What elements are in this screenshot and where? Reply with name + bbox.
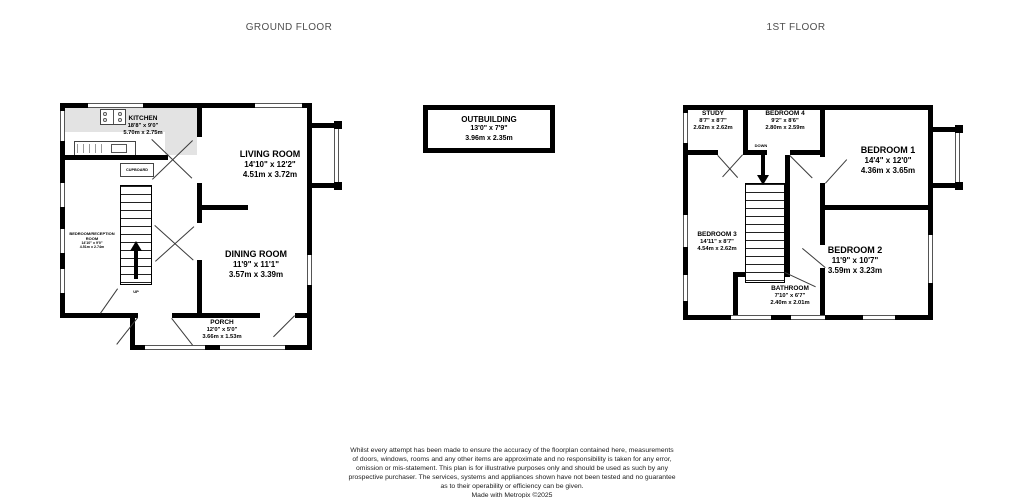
wall-segment bbox=[172, 313, 260, 318]
up-arrow-icon bbox=[130, 241, 142, 251]
window bbox=[928, 235, 933, 283]
window bbox=[791, 315, 825, 320]
wall-segment bbox=[197, 103, 202, 137]
first-floor-plan: DOWN STUDY 8'7" x 8'7" 2.62m x 2.62m BED… bbox=[683, 105, 933, 320]
wall-segment bbox=[785, 155, 790, 277]
bay-window-post bbox=[334, 182, 342, 190]
window bbox=[863, 315, 895, 320]
room-label-kitchen: KITCHEN 18'8" x 9'0" 5.70m x 2.75m bbox=[103, 115, 183, 138]
wall-segment bbox=[733, 272, 738, 315]
wall-segment bbox=[295, 313, 312, 318]
bay-window-glass bbox=[955, 132, 960, 183]
room-label-bedroom-3: BEDROOM 3 14'11" x 8'7" 4.54m x 2.62m bbox=[677, 231, 757, 254]
disclaimer-line: Whilst every attempt has been made to en… bbox=[312, 446, 712, 455]
window bbox=[683, 275, 688, 301]
window bbox=[731, 315, 771, 320]
wall-segment bbox=[820, 205, 933, 210]
wall-segment bbox=[60, 155, 168, 160]
room-label-porch: PORCH 12'0" x 5'0" 3.66m x 1.53m bbox=[162, 319, 282, 342]
disclaimer-line: omission or mis-statement. This plan is … bbox=[312, 464, 712, 473]
disclaimer-line: as to their operability or efficiency ca… bbox=[312, 482, 712, 491]
disclaimer-line: of doors, windows, rooms and any other i… bbox=[312, 455, 712, 464]
floorplan-page: GROUND FLOOR 1ST FLOOR bbox=[0, 0, 1024, 498]
ground-floor-plan: CUPBOARD UP KITCHEN 18'8" x 9'0" 5.70m x… bbox=[60, 103, 312, 318]
cupboard-box: CUPBOARD bbox=[120, 163, 154, 177]
room-label-bedroom-4: BEDROOM 4 9'2" x 8'6" 2.80m x 2.59m bbox=[745, 110, 825, 133]
bay-window-post bbox=[334, 121, 342, 129]
metropix-credit: Made with Metropix ©2025 bbox=[312, 491, 712, 498]
door-swing bbox=[722, 154, 743, 177]
draining-board-icon bbox=[77, 144, 105, 153]
up-arrow-stem bbox=[134, 251, 138, 279]
bay-window-post bbox=[955, 125, 963, 133]
up-label: UP bbox=[126, 289, 146, 294]
bay-window-glass bbox=[334, 128, 339, 183]
room-label-bedroom-2: BEDROOM 2 11'9" x 10'7" 3.59m x 3.23m bbox=[795, 245, 915, 276]
disclaimer-line: prospective purchaser. The services, sys… bbox=[312, 473, 712, 482]
wall-segment bbox=[197, 183, 202, 223]
wall-segment bbox=[205, 345, 220, 350]
room-label-dining-room: DINING ROOM 11'9" x 11'1" 3.57m x 3.39m bbox=[196, 249, 316, 280]
down-label: DOWN bbox=[747, 143, 775, 148]
down-arrow-icon bbox=[757, 175, 769, 185]
window bbox=[60, 269, 65, 293]
room-label-bedroom-reception: BEDROOM/RECEPTION ROOM 14'10" x 9'0" 4.5… bbox=[63, 231, 121, 250]
disclaimer-text: Whilst every attempt has been made to en… bbox=[312, 446, 712, 498]
first-floor-title: 1ST FLOOR bbox=[716, 22, 876, 33]
room-label-study: STUDY 8'7" x 8'7" 2.62m x 2.62m bbox=[675, 110, 751, 133]
window bbox=[60, 111, 65, 141]
room-label-bedroom-1: BEDROOM 1 14'4" x 12'0" 4.36m x 3.65m bbox=[828, 145, 948, 176]
bay-window-post bbox=[955, 182, 963, 190]
window bbox=[145, 345, 205, 350]
sink-unit-icon bbox=[74, 141, 136, 156]
ground-floor-title: GROUND FLOOR bbox=[209, 22, 369, 33]
wall-segment bbox=[60, 313, 138, 318]
sink-bowl-icon bbox=[111, 144, 127, 153]
wall-segment bbox=[928, 105, 933, 320]
room-label-bathroom: BATHROOM 7'10" x 6'7" 2.40m x 2.01m bbox=[748, 285, 832, 308]
door-swing bbox=[717, 155, 738, 178]
outbuilding-plan: OUTBUILDING 13'0" x 7'9" 3.96m x 2.35m bbox=[423, 105, 555, 153]
window bbox=[220, 345, 285, 350]
down-arrow-stem bbox=[761, 153, 765, 175]
wall-segment bbox=[820, 210, 825, 245]
wall-segment bbox=[285, 345, 312, 350]
room-label-living-room: LIVING ROOM 14'10" x 12'2" 4.51m x 3.72m bbox=[210, 149, 330, 180]
window bbox=[88, 103, 143, 108]
window bbox=[60, 183, 65, 207]
window bbox=[255, 103, 302, 108]
wall-segment bbox=[200, 205, 248, 210]
wall-segment bbox=[683, 150, 718, 155]
door-swing bbox=[789, 155, 812, 178]
door-swing bbox=[100, 288, 118, 313]
wall-segment bbox=[130, 345, 145, 350]
